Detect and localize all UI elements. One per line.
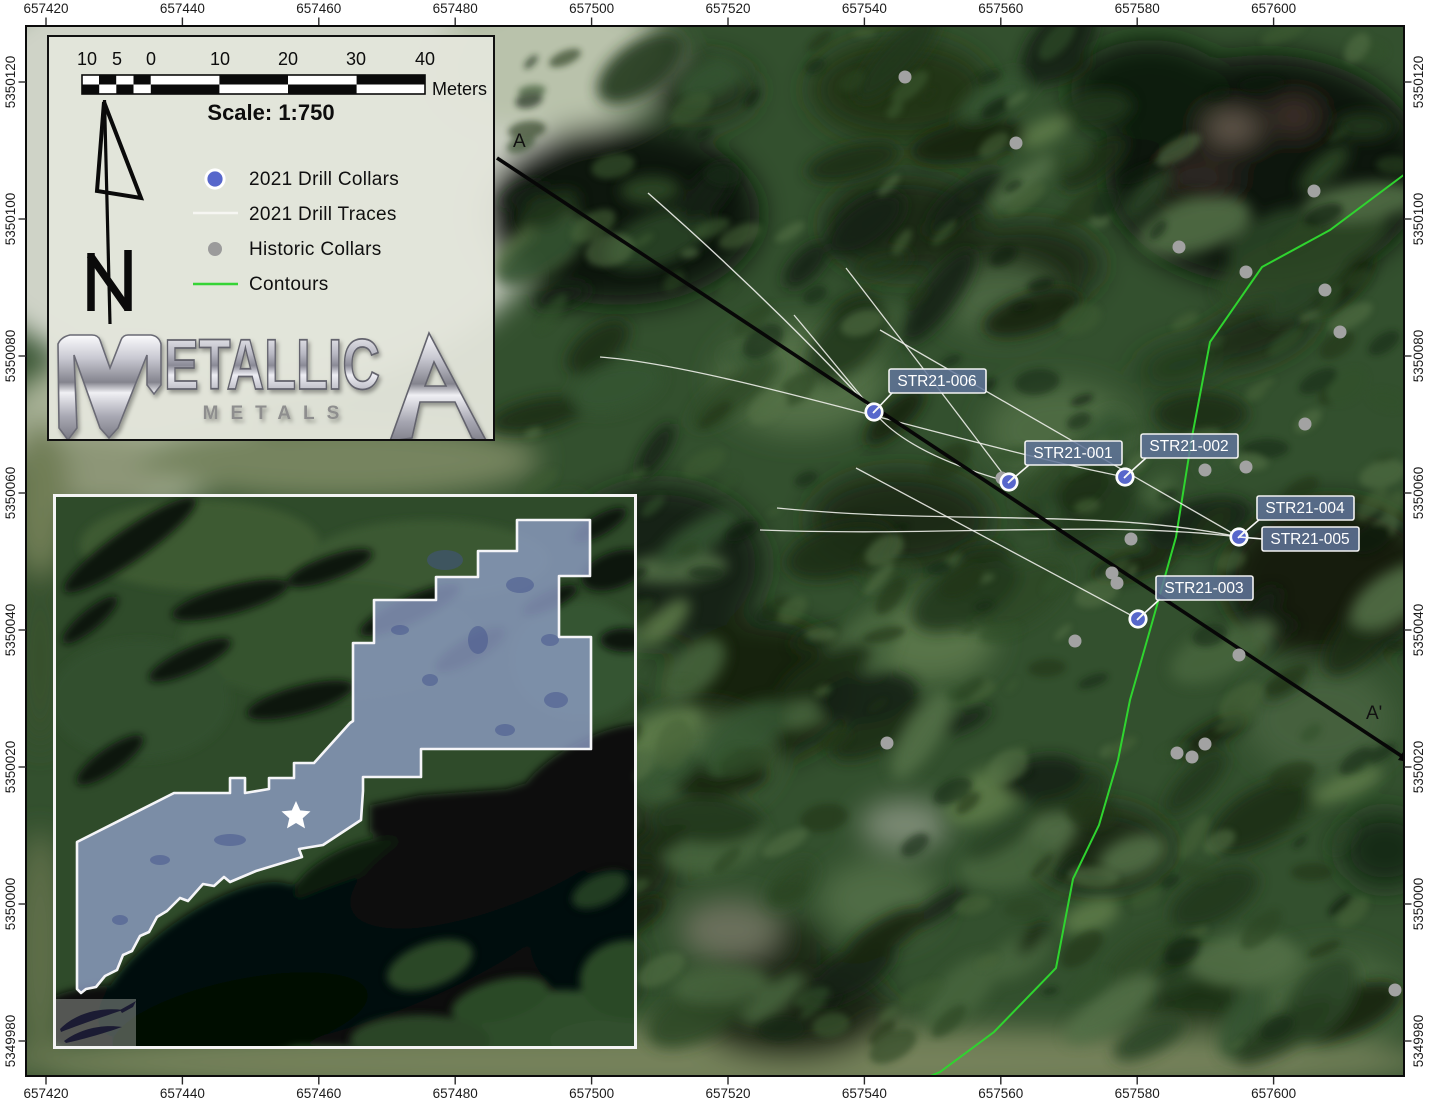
svg-text:5350040: 5350040 [3,604,18,657]
svg-text:657460: 657460 [296,1,341,16]
svg-text:657540: 657540 [842,1086,887,1101]
svg-text:5349980: 5349980 [1411,1015,1426,1068]
svg-text:657560: 657560 [978,1,1023,16]
svg-text:5350000: 5350000 [3,878,18,931]
svg-text:5350020: 5350020 [1411,741,1426,794]
svg-text:5350000: 5350000 [1411,878,1426,931]
svg-text:5350080: 5350080 [1411,330,1426,383]
svg-text:657460: 657460 [296,1086,341,1101]
svg-text:657440: 657440 [160,1,205,16]
svg-text:657600: 657600 [1251,1,1296,16]
svg-text:657600: 657600 [1251,1086,1296,1101]
svg-text:657580: 657580 [1115,1086,1160,1101]
svg-text:657420: 657420 [23,1,68,16]
svg-text:5350120: 5350120 [3,56,18,109]
svg-text:657540: 657540 [842,1,887,16]
svg-text:657580: 657580 [1115,1,1160,16]
svg-text:657560: 657560 [978,1086,1023,1101]
svg-text:5350100: 5350100 [3,193,18,246]
svg-text:5350080: 5350080 [3,330,18,383]
svg-text:5350060: 5350060 [1411,467,1426,520]
svg-text:5350120: 5350120 [1411,56,1426,109]
svg-text:5350060: 5350060 [3,467,18,520]
svg-text:657500: 657500 [569,1,614,16]
svg-text:657480: 657480 [433,1086,478,1101]
svg-text:657520: 657520 [705,1,750,16]
svg-text:657480: 657480 [433,1,478,16]
svg-text:5350100: 5350100 [1411,193,1426,246]
svg-text:5350040: 5350040 [1411,604,1426,657]
svg-text:5350020: 5350020 [3,741,18,794]
svg-text:657520: 657520 [705,1086,750,1101]
svg-text:5349980: 5349980 [3,1015,18,1068]
svg-text:657420: 657420 [23,1086,68,1101]
svg-text:657440: 657440 [160,1086,205,1101]
svg-text:657500: 657500 [569,1086,614,1101]
